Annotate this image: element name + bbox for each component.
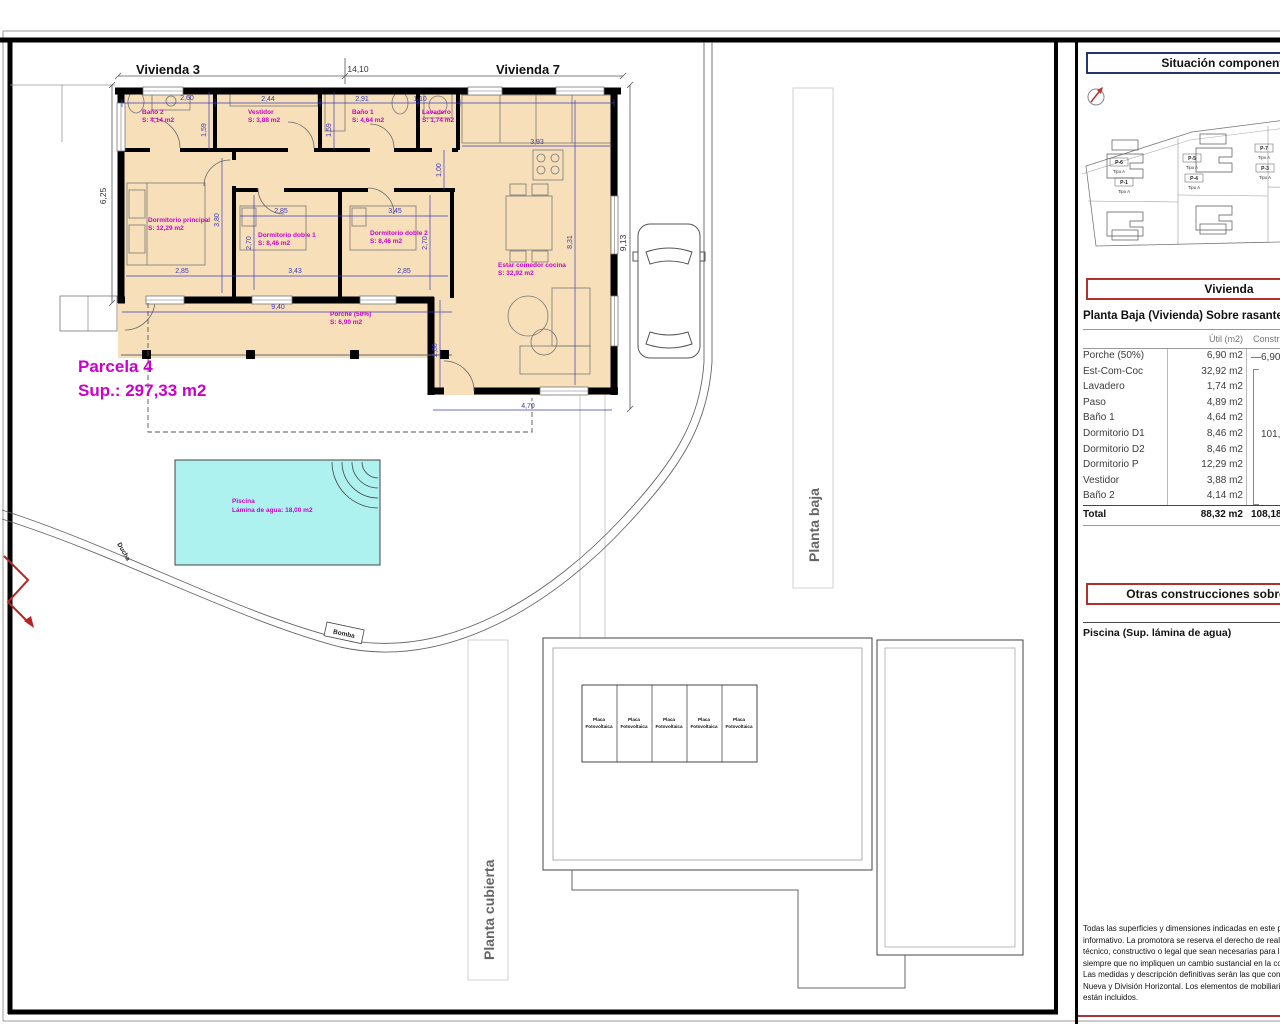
svg-text:4,70: 4,70 [521, 403, 535, 410]
row-label: Baño 2 [1083, 490, 1115, 501]
disclaimer-line: Nueva y División Horizontal. Los element… [1083, 981, 1280, 993]
construido-group: 101,28 m2 [1261, 429, 1280, 440]
table-row: Lavadero 1,74 m2 [1083, 380, 1280, 396]
svg-text:Tipo A: Tipo A [1258, 155, 1270, 160]
svg-text:Placa: Placa [593, 717, 605, 722]
table-row: Baño 2 4,14 m2 [1083, 489, 1280, 505]
row-label: Dormitorio D2 [1083, 444, 1145, 455]
row-label: Dormitorio P [1083, 459, 1139, 470]
svg-text:Dormitorio doble 1: Dormitorio doble 1 [258, 232, 316, 239]
row-label: Lavadero [1083, 381, 1125, 392]
svg-text:Dormitorio doble 2: Dormitorio doble 2 [370, 230, 428, 237]
svg-text:S: 6,90 m2: S: 6,90 m2 [330, 319, 363, 326]
disclaimer-line: informativo. La promotora se reserva el … [1083, 935, 1280, 947]
roof-plan: Placa Fotovoltaica Placa Fotovoltaica Pl… [543, 638, 1023, 988]
areas-table: Útil (m2) Construido (m2) Porche (50%) 6… [1083, 329, 1280, 526]
solar-panels: Placa Fotovoltaica Placa Fotovoltaica Pl… [582, 685, 757, 762]
svg-text:Fotovoltaica: Fotovoltaica [690, 724, 718, 729]
disclaimer-line: Todas las superficies y dimensiones indi… [1083, 923, 1280, 935]
bottom-red-rule [1078, 1015, 1280, 1017]
svg-text:2,85: 2,85 [274, 208, 288, 215]
info-panel: Situación componentes P-6 Tipo A P-1 T [1075, 38, 1280, 1024]
svg-text:Tipo A: Tipo A [1186, 165, 1198, 170]
total-label: Total [1083, 509, 1106, 520]
svg-text:S: 4,64 m2: S: 4,64 m2 [352, 117, 385, 124]
bomba-box: Bomba [324, 622, 364, 644]
row-label: Baño 1 [1083, 412, 1115, 423]
table-row: Est-Com-Coc 32,92 m2 [1083, 365, 1280, 381]
svg-text:9,13: 9,13 [618, 234, 628, 251]
svg-text:S: 4,14 m2: S: 4,14 m2 [142, 117, 175, 124]
svg-text:3,80: 3,80 [214, 213, 221, 227]
parcela-name: Parcela 4 [78, 357, 153, 376]
table-row: Paso 4,89 m2 [1083, 396, 1280, 412]
svg-text:3,45: 3,45 [388, 208, 402, 215]
pool: Piscina Lámina de agua: 18,00 m2 [175, 460, 380, 565]
svg-text:Dormitorio principal: Dormitorio principal [148, 217, 210, 224]
svg-text:Porche (50%): Porche (50%) [330, 311, 371, 318]
svg-text:9,40: 9,40 [271, 304, 285, 311]
table-row: Vestidor 3,88 m2 [1083, 474, 1280, 490]
svg-text:14,10: 14,10 [347, 64, 369, 74]
svg-text:6,25: 6,25 [98, 187, 108, 204]
construido-dash: — [1251, 352, 1261, 363]
vivienda3-title: Vivienda 3 [136, 62, 200, 77]
svg-text:Tipo A: Tipo A [1188, 185, 1200, 190]
otras-header: Otras construcciones sobre rasante [1086, 583, 1280, 605]
svg-text:2,80: 2,80 [432, 343, 439, 357]
disclaimer-line: siempre que no impliquen un cambio susta… [1083, 958, 1280, 970]
row-util: 12,29 m2 [1163, 459, 1243, 470]
row-label: Porche (50%) [1083, 350, 1144, 361]
planta-baja-heading: Planta Baja (Vivienda) Sobre rasante [1083, 310, 1280, 322]
svg-text:1,59: 1,59 [201, 123, 208, 137]
svg-text:S: 8,46 m2: S: 8,46 m2 [370, 238, 403, 245]
boundary-steps [572, 870, 905, 988]
divider-line [1083, 622, 1280, 623]
svg-text:Lámina de agua: 18,00 m2: Lámina de agua: 18,00 m2 [232, 507, 313, 514]
svg-text:2,85: 2,85 [397, 268, 411, 275]
svg-text:Tipo A: Tipo A [1118, 189, 1130, 194]
svg-text:P-1: P-1 [1120, 180, 1128, 186]
svg-text:Estar comedor cocina: Estar comedor cocina [498, 262, 566, 269]
svg-text:2,44: 2,44 [261, 96, 275, 103]
vivienda7-title: Vivienda 7 [496, 62, 560, 77]
col-util: Útil (m2) [1171, 334, 1243, 344]
row-util: 8,46 m2 [1163, 444, 1243, 455]
svg-text:Fotovoltaica: Fotovoltaica [585, 724, 613, 729]
vivienda-header: Vivienda [1086, 278, 1280, 300]
svg-text:Lavadero: Lavadero [422, 109, 451, 116]
table-row: Dormitorio P 12,29 m2 [1083, 458, 1280, 474]
svg-text:Planta cubierta: Planta cubierta [481, 859, 497, 960]
disclaimer-line: técnico, constructivo o legal que sean n… [1083, 946, 1280, 958]
svg-text:Planta baja: Planta baja [806, 488, 822, 562]
row-util: 4,89 m2 [1163, 397, 1243, 408]
construido-porche: 6,90 m2 [1261, 352, 1280, 363]
svg-text:P-7: P-7 [1260, 146, 1268, 152]
svg-text:Fotovoltaica: Fotovoltaica [620, 724, 648, 729]
svg-text:8,31: 8,31 [567, 235, 574, 249]
row-util: 32,92 m2 [1163, 366, 1243, 377]
house-floor [118, 88, 618, 395]
row-label: Est-Com-Coc [1083, 366, 1143, 377]
svg-text:Vestidor: Vestidor [248, 109, 274, 116]
table-row: Dormitorio D1 8,46 m2 [1083, 427, 1280, 443]
piscina-line: Piscina (Sup. lámina de agua) [1083, 627, 1231, 639]
svg-text:P-6: P-6 [1115, 160, 1123, 166]
row-label: Dormitorio D1 [1083, 428, 1145, 439]
total-row: Total 88,32 m2 108,18 m2 [1083, 505, 1280, 526]
svg-text:Placa: Placa [628, 717, 640, 722]
svg-text:Placa: Placa [733, 717, 745, 722]
svg-text:S: 3,88 m2: S: 3,88 m2 [248, 117, 281, 124]
planta-cubierta-label: Planta cubierta [468, 640, 508, 980]
svg-text:Baño 1: Baño 1 [352, 109, 374, 116]
situacion-header: Situación componentes [1086, 52, 1280, 74]
svg-text:Fotovoltaica: Fotovoltaica [655, 724, 683, 729]
svg-text:1,10: 1,10 [413, 96, 427, 103]
table-row: Baño 1 4,64 m2 [1083, 411, 1280, 427]
table-header: Útil (m2) Construido (m2) [1083, 329, 1280, 349]
plan-sheet: { "colors": { "room_label_magenta": "#cc… [0, 0, 1280, 1024]
svg-text:Baño 2: Baño 2 [142, 109, 164, 116]
svg-text:2,70: 2,70 [422, 236, 429, 250]
car [633, 224, 705, 358]
svg-text:3,43: 3,43 [288, 268, 302, 275]
ducha-label: Ducha [115, 542, 131, 563]
svg-text:S: 32,92 m2: S: 32,92 m2 [498, 270, 534, 277]
svg-text:Placa: Placa [698, 717, 710, 722]
svg-text:2,85: 2,85 [175, 268, 189, 275]
svg-text:1,00: 1,00 [436, 163, 443, 177]
planta-baja-label: Planta baja [793, 88, 833, 588]
row-util: 1,74 m2 [1163, 381, 1243, 392]
row-util: 4,14 m2 [1163, 490, 1243, 501]
col-construido: Construido (m2) [1253, 334, 1280, 344]
pool-roof-outline [877, 640, 1023, 955]
entry-steps [60, 296, 117, 331]
disclaimer-line: están incluidos. [1083, 992, 1280, 1004]
row-util: 3,88 m2 [1163, 475, 1243, 486]
svg-text:Fotovoltaica: Fotovoltaica [725, 724, 753, 729]
svg-text:Tipo A: Tipo A [1113, 169, 1125, 174]
svg-text:P-5: P-5 [1188, 156, 1196, 162]
row-label: Vestidor [1083, 475, 1119, 486]
total-construido: 108,18 m2 [1251, 509, 1280, 520]
table-body: Porche (50%) 6,90 m2 Est-Com-Coc 32,92 m… [1083, 349, 1280, 505]
disclaimer: Todas las superficies y dimensiones indi… [1083, 923, 1280, 1004]
construido-bracket [1253, 369, 1259, 505]
row-util: 4,64 m2 [1163, 412, 1243, 423]
svg-text:Piscina: Piscina [232, 498, 255, 505]
row-util: 8,46 m2 [1163, 428, 1243, 439]
svg-text:P-4: P-4 [1190, 176, 1198, 182]
disclaimer-line: Las medidas y descripción definitivas se… [1083, 969, 1280, 981]
svg-text:2,70: 2,70 [246, 236, 253, 250]
svg-text:2,91: 2,91 [355, 96, 369, 103]
neighbor-lines [10, 85, 115, 142]
table-row: Dormitorio D2 8,46 m2 [1083, 443, 1280, 459]
svg-text:P-3: P-3 [1261, 166, 1269, 172]
svg-text:S: 12,29 m2: S: 12,29 m2 [148, 225, 184, 232]
site-plan-mini: P-6 Tipo A P-1 Tipo A P-5 Tipo A P-4 Tip… [1082, 102, 1280, 254]
row-util: 6,90 m2 [1163, 350, 1243, 361]
parcela-area: Sup.: 297,33 m2 [78, 381, 207, 400]
svg-text:Placa: Placa [663, 717, 675, 722]
svg-text:3,93: 3,93 [530, 139, 544, 146]
svg-text:S: 1,74 m2: S: 1,74 m2 [422, 117, 455, 124]
projection-lines [580, 395, 605, 638]
total-util: 88,32 m2 [1163, 509, 1243, 520]
svg-text:1,59: 1,59 [326, 123, 333, 137]
row-label: Paso [1083, 397, 1106, 408]
svg-text:S: 8,46 m2: S: 8,46 m2 [258, 240, 291, 247]
svg-text:Tipo A: Tipo A [1259, 175, 1271, 180]
svg-text:2,60: 2,60 [180, 95, 194, 102]
